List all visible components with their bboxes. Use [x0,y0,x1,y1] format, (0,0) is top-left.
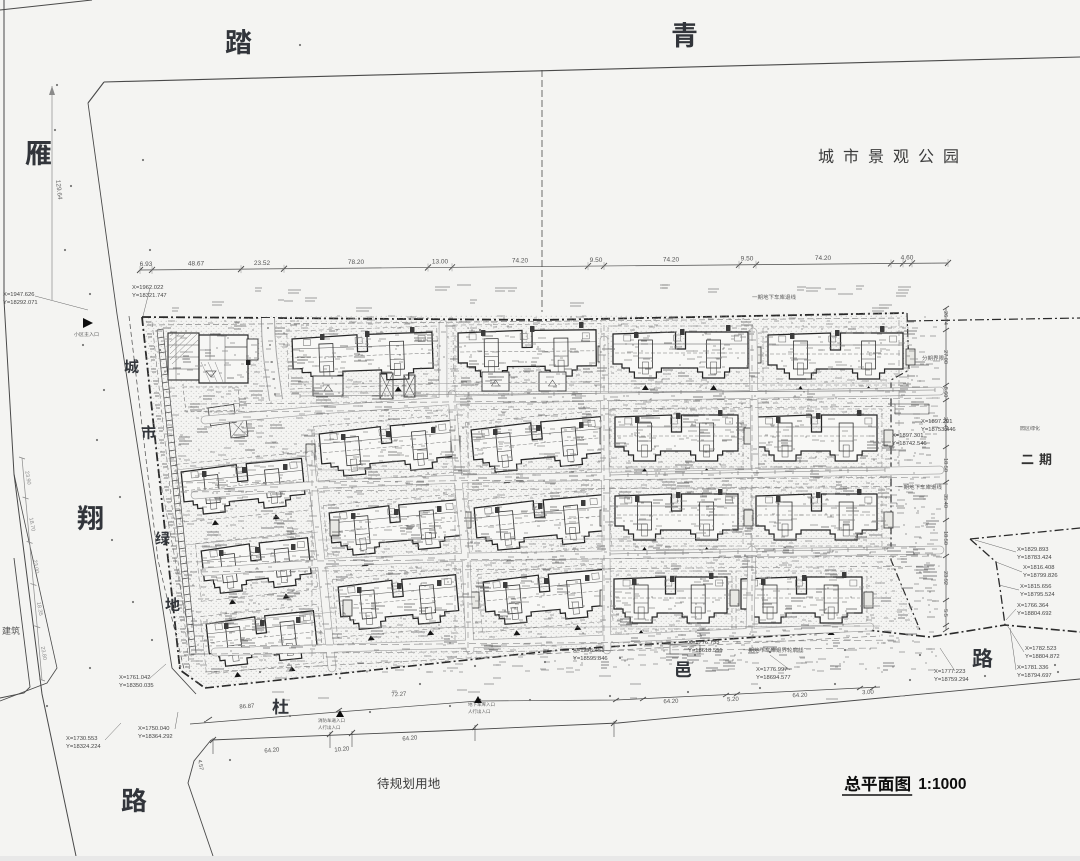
svg-text:27.00: 27.00 [942,350,948,364]
svg-text:74.20: 74.20 [815,255,832,262]
svg-text:X=1816.408: X=1816.408 [1023,565,1054,571]
svg-text:18.50: 18.50 [942,531,948,545]
svg-text:6.93: 6.93 [140,261,153,268]
svg-text:Y=18694.577: Y=18694.577 [756,675,791,681]
svg-text:Y=18292.071: Y=18292.071 [3,300,38,306]
svg-text:X=1730.553: X=1730.553 [66,736,97,742]
svg-text:Y=18350.035: Y=18350.035 [119,683,154,689]
svg-text:Y=18759.294: Y=18759.294 [934,677,969,683]
svg-text:9.50: 9.50 [741,256,754,263]
svg-text:5.20: 5.20 [727,697,740,703]
svg-text:X=1761.042: X=1761.042 [119,675,150,681]
svg-text:X=1962.022: X=1962.022 [132,285,163,291]
svg-text:Y=18753.446: Y=18753.446 [921,427,956,433]
svg-text:13.00: 13.00 [432,258,449,265]
svg-text:64.20: 64.20 [663,699,679,706]
svg-text:X=1897.301: X=1897.301 [892,433,923,439]
svg-text:48.67: 48.67 [188,261,205,268]
svg-text:3.00: 3.00 [862,690,875,696]
svg-text:X=1815.656: X=1815.656 [1020,584,1051,590]
svg-text:Y=18742.546: Y=18742.546 [892,441,927,447]
svg-text:Y=18783.424: Y=18783.424 [1017,555,1052,561]
svg-text:23.52: 23.52 [254,260,271,267]
svg-text:64.20: 64.20 [792,693,808,700]
svg-text:X=1766.364: X=1766.364 [1017,603,1049,609]
svg-text:X=1750.040: X=1750.040 [138,726,169,732]
svg-text:Y=18794.697: Y=18794.697 [1017,673,1052,679]
svg-text:Y=18804.692: Y=18804.692 [1017,611,1052,617]
svg-text:86.87: 86.87 [239,703,255,710]
svg-text:1:1000: 1:1000 [918,776,966,793]
svg-text:26.74: 26.74 [942,311,948,325]
svg-text:72.27: 72.27 [391,691,407,698]
svg-text:X=1829.893: X=1829.893 [1017,547,1048,553]
svg-text:Y=18795.524: Y=18795.524 [1020,592,1055,598]
svg-text:Y=18799.826: Y=18799.826 [1023,573,1058,579]
svg-text:23.92: 23.92 [942,571,948,585]
svg-text:35.40: 35.40 [942,494,948,508]
svg-text:74.20: 74.20 [512,258,529,265]
svg-text:Y=18364.292: Y=18364.292 [138,734,173,740]
svg-text:4.60: 4.60 [901,254,914,261]
svg-text:X=1897.201: X=1897.201 [921,419,952,425]
svg-text:X=1947.626: X=1947.626 [3,292,34,298]
svg-text:Y=18618.551: Y=18618.551 [688,648,723,654]
svg-text:X=1781.336: X=1781.336 [1017,665,1048,671]
svg-text:Y=18324.224: Y=18324.224 [66,744,101,750]
svg-text:X=1776.997: X=1776.997 [756,667,787,673]
svg-text:Y=18321.747: Y=18321.747 [132,293,167,299]
svg-text:74.20: 74.20 [663,256,680,263]
svg-text:5.5: 5.5 [942,609,948,617]
svg-text:X=1777.223: X=1777.223 [934,669,965,675]
svg-text:X=1782.523: X=1782.523 [1025,646,1056,652]
svg-text:78.20: 78.20 [348,259,365,266]
svg-text:Y=18595.846: Y=18595.846 [573,656,608,662]
svg-text:9.50: 9.50 [590,257,603,264]
svg-text:Y=18804.872: Y=18804.872 [1025,654,1060,660]
